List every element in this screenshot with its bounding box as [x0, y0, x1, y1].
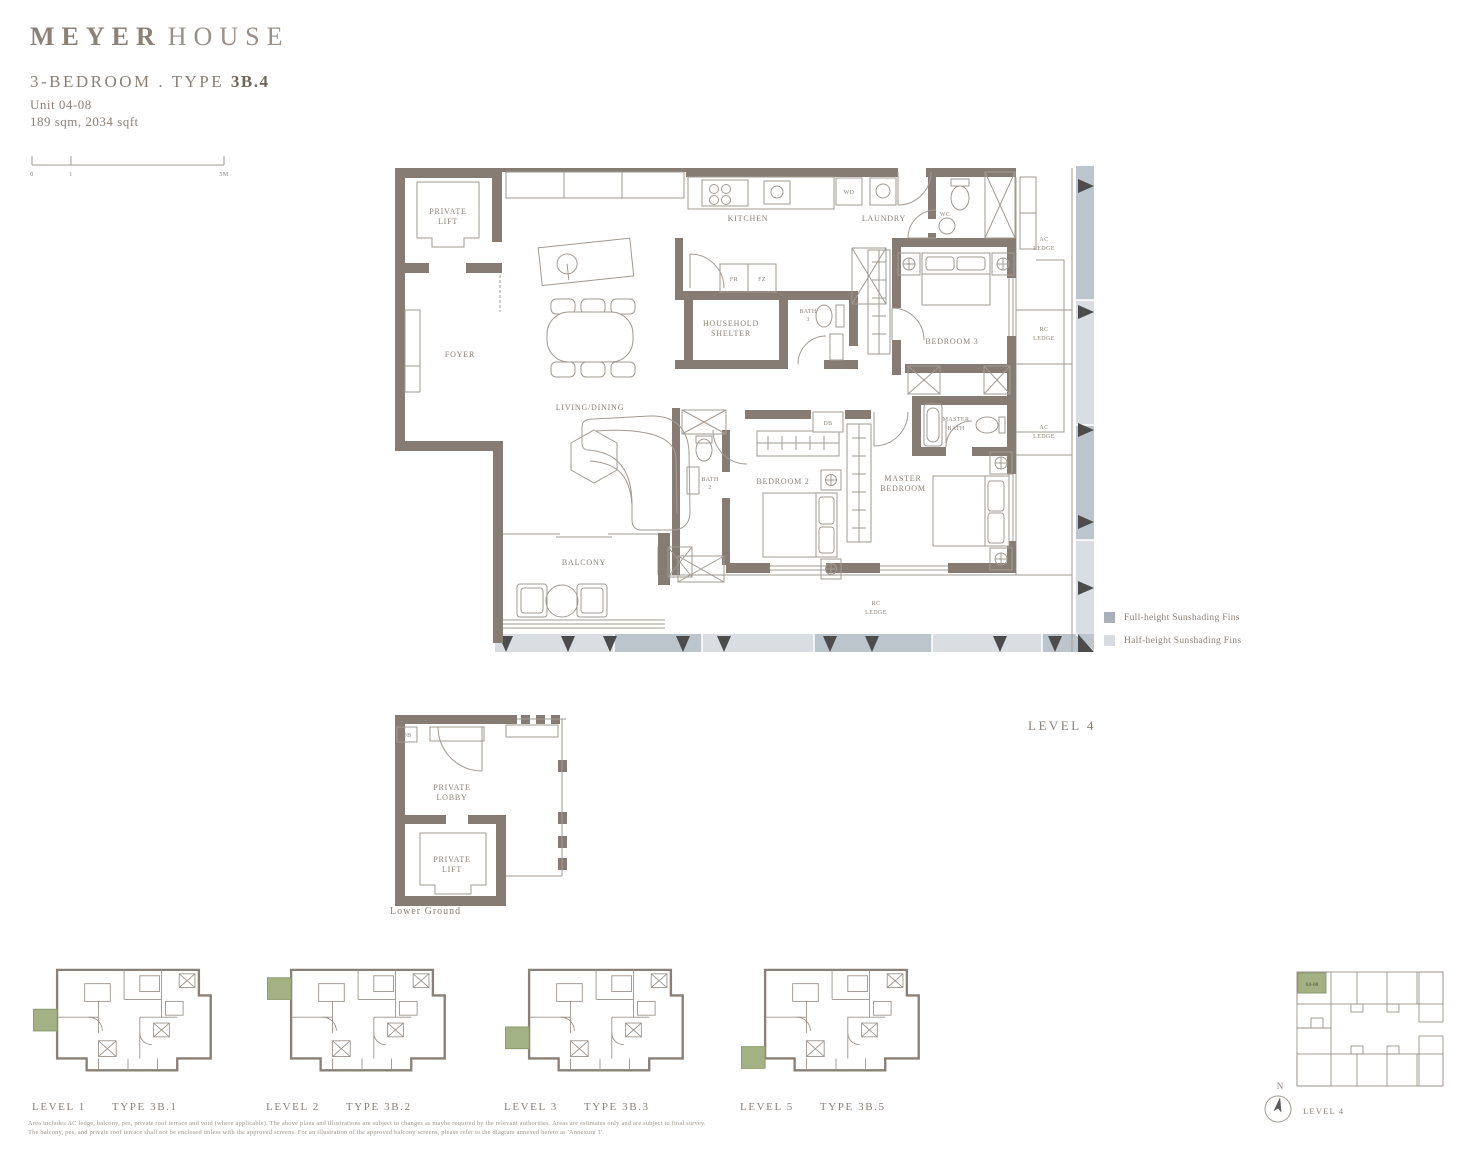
svg-text:LIFT: LIFT [438, 217, 458, 226]
legend-item-full: Full-height Sunshading Fins [1104, 612, 1241, 623]
mini-type-label: TYPE 3B.3 [584, 1101, 650, 1113]
scale-bar: 0 1 5M [30, 152, 240, 182]
brand-primary: MEYER [30, 22, 162, 51]
mini-level-label: LEVEL 2 [266, 1101, 320, 1113]
mini-plan-level1: LEVEL 1TYPE 3B.1 [28, 962, 240, 1113]
main-floor-plan: PRIVATE LIFT FOYER KITCHEN LAUNDRY WC WD… [385, 160, 1100, 660]
label-laundry: LAUNDRY [862, 214, 906, 223]
label-wd: WD [844, 190, 855, 196]
lower-ground-plan: DB PRIVATE LOBBY PRIVATE LIFT [385, 710, 580, 925]
label-bath2: BATH [701, 477, 719, 483]
label-rc-ledge-right: RC [1040, 327, 1049, 333]
unit-number: Unit 04-08 [30, 97, 92, 113]
floorplan-page: { "header": { "brand_primary": "MEYER", … [0, 0, 1472, 1156]
scale-5m: 5M [219, 172, 228, 178]
label-master-bath: MASTER [943, 417, 970, 423]
label-rc-ledge-bottom: RC [872, 601, 881, 607]
label-fz: FZ [758, 277, 766, 283]
scale-0: 0 [30, 172, 33, 178]
sunshading-fins-bottom [495, 634, 1094, 652]
mini-level-label: LEVEL 3 [504, 1101, 558, 1113]
legend-label-full: Full-height Sunshading Fins [1124, 613, 1240, 623]
mini-plan-level3: LEVEL 3TYPE 3B.3 [500, 962, 712, 1113]
svg-text:LEDGE: LEDGE [1033, 336, 1055, 342]
svg-text:SHELTER: SHELTER [711, 329, 751, 338]
label-wc: WC [940, 212, 950, 218]
kitchen-counter [688, 177, 834, 209]
mini-level-label: LEVEL 1 [32, 1101, 86, 1113]
label-lg-private-lift: PRIVATE [433, 855, 470, 864]
label-household-shelter: HOUSEHOLD [703, 319, 759, 328]
bed-master [933, 452, 1012, 570]
title-type: 3B.4 [231, 72, 270, 91]
mini-plan-level5: LEVEL 5TYPE 3B.5 [736, 962, 948, 1113]
compass-icon: N [1256, 1078, 1300, 1130]
mini-plan-level3-drawing [500, 962, 700, 1090]
svg-text:BEDROOM: BEDROOM [880, 484, 926, 493]
key-plan-unit-label: 04-08 [1306, 982, 1319, 988]
balcony-furniture [517, 584, 607, 617]
lift-highlight [505, 1027, 529, 1049]
mini-plan-level2: LEVEL 2TYPE 3B.2 [262, 962, 474, 1113]
mini-level-label: LEVEL 5 [740, 1101, 794, 1113]
label-bath3: BATH [799, 309, 817, 315]
key-plan: 04-08 [1293, 966, 1463, 1098]
lift-highlight [267, 978, 291, 1000]
disclaimer: Area includes AC ledge, balcony, pes, pr… [28, 1120, 1038, 1137]
sunshading-fins-right [1076, 166, 1094, 652]
lower-ground-caption: Lower Ground [390, 906, 461, 917]
label-living-dining: LIVING/DINING [556, 403, 625, 412]
label-private-lobby: PRIVATE [433, 783, 470, 792]
label-master-bedroom: MASTER [884, 474, 921, 483]
mini-type-label: TYPE 3B.5 [820, 1101, 886, 1113]
legend: Full-height Sunshading Fins Half-height … [1104, 612, 1241, 658]
bed-bedroom2 [763, 470, 841, 579]
disclaimer-line2: The balcony, pes, and private roof terra… [28, 1129, 1038, 1138]
svg-text:LEDGE: LEDGE [865, 610, 887, 616]
label-balcony: BALCONY [562, 558, 606, 567]
bed-bedroom3 [898, 253, 1014, 305]
svg-text:3: 3 [806, 317, 809, 323]
brand-secondary: HOUSE [168, 22, 290, 51]
dining-table [547, 299, 635, 377]
svg-text:LOBBY: LOBBY [436, 793, 467, 802]
label-kitchen: KITCHEN [728, 214, 769, 223]
mini-plan-level1-drawing [28, 962, 228, 1090]
brand-logo: MEYERHOUSE [30, 22, 289, 52]
compass-north-label: N [1277, 1081, 1284, 1091]
lift-highlight [33, 1009, 57, 1031]
mini-type-label: TYPE 3B.2 [346, 1101, 412, 1113]
label-lg-db: DB [402, 733, 411, 739]
lift-highlight [741, 1047, 765, 1069]
label-ac-ledge-mid: AC [1039, 425, 1048, 431]
key-plan-caption: LEVEL 4 [1303, 1106, 1344, 1116]
title-prefix: 3-BEDROOM . TYPE [30, 72, 224, 91]
level-caption: LEVEL 4 [1028, 718, 1096, 734]
half-height-fin-swatch [1104, 635, 1115, 646]
legend-item-half: Half-height Sunshading Fins [1104, 635, 1241, 646]
label-private-lift: PRIVATE [429, 207, 466, 216]
mini-plan-level5-drawing [736, 962, 936, 1090]
legend-label-half: Half-height Sunshading Fins [1124, 636, 1241, 646]
svg-text:LEDGE: LEDGE [1033, 434, 1055, 440]
svg-text:LIFT: LIFT [442, 865, 462, 874]
label-fr: FR [730, 277, 738, 283]
svg-text:LEDGE: LEDGE [1033, 246, 1055, 252]
disclaimer-line1: Area includes AC ledge, balcony, pes, pr… [28, 1120, 1038, 1129]
mini-plan-level2-drawing [262, 962, 462, 1090]
page-title: 3-BEDROOM . TYPE 3B.4 [30, 72, 269, 92]
label-bedroom3: BEDROOM 3 [925, 337, 978, 346]
label-db: DB [823, 421, 832, 427]
unit-area: 189 sqm, 2034 sqft [30, 114, 139, 130]
mini-type-label: TYPE 3B.1 [112, 1101, 178, 1113]
scale-1: 1 [69, 172, 72, 178]
svg-text:2: 2 [708, 485, 711, 491]
label-bedroom2: BEDROOM 2 [756, 477, 809, 486]
svg-text:BATH: BATH [947, 426, 965, 432]
label-foyer: FOYER [445, 350, 475, 359]
full-height-fin-swatch [1104, 612, 1115, 623]
label-ac-ledge-top: AC [1039, 237, 1048, 243]
